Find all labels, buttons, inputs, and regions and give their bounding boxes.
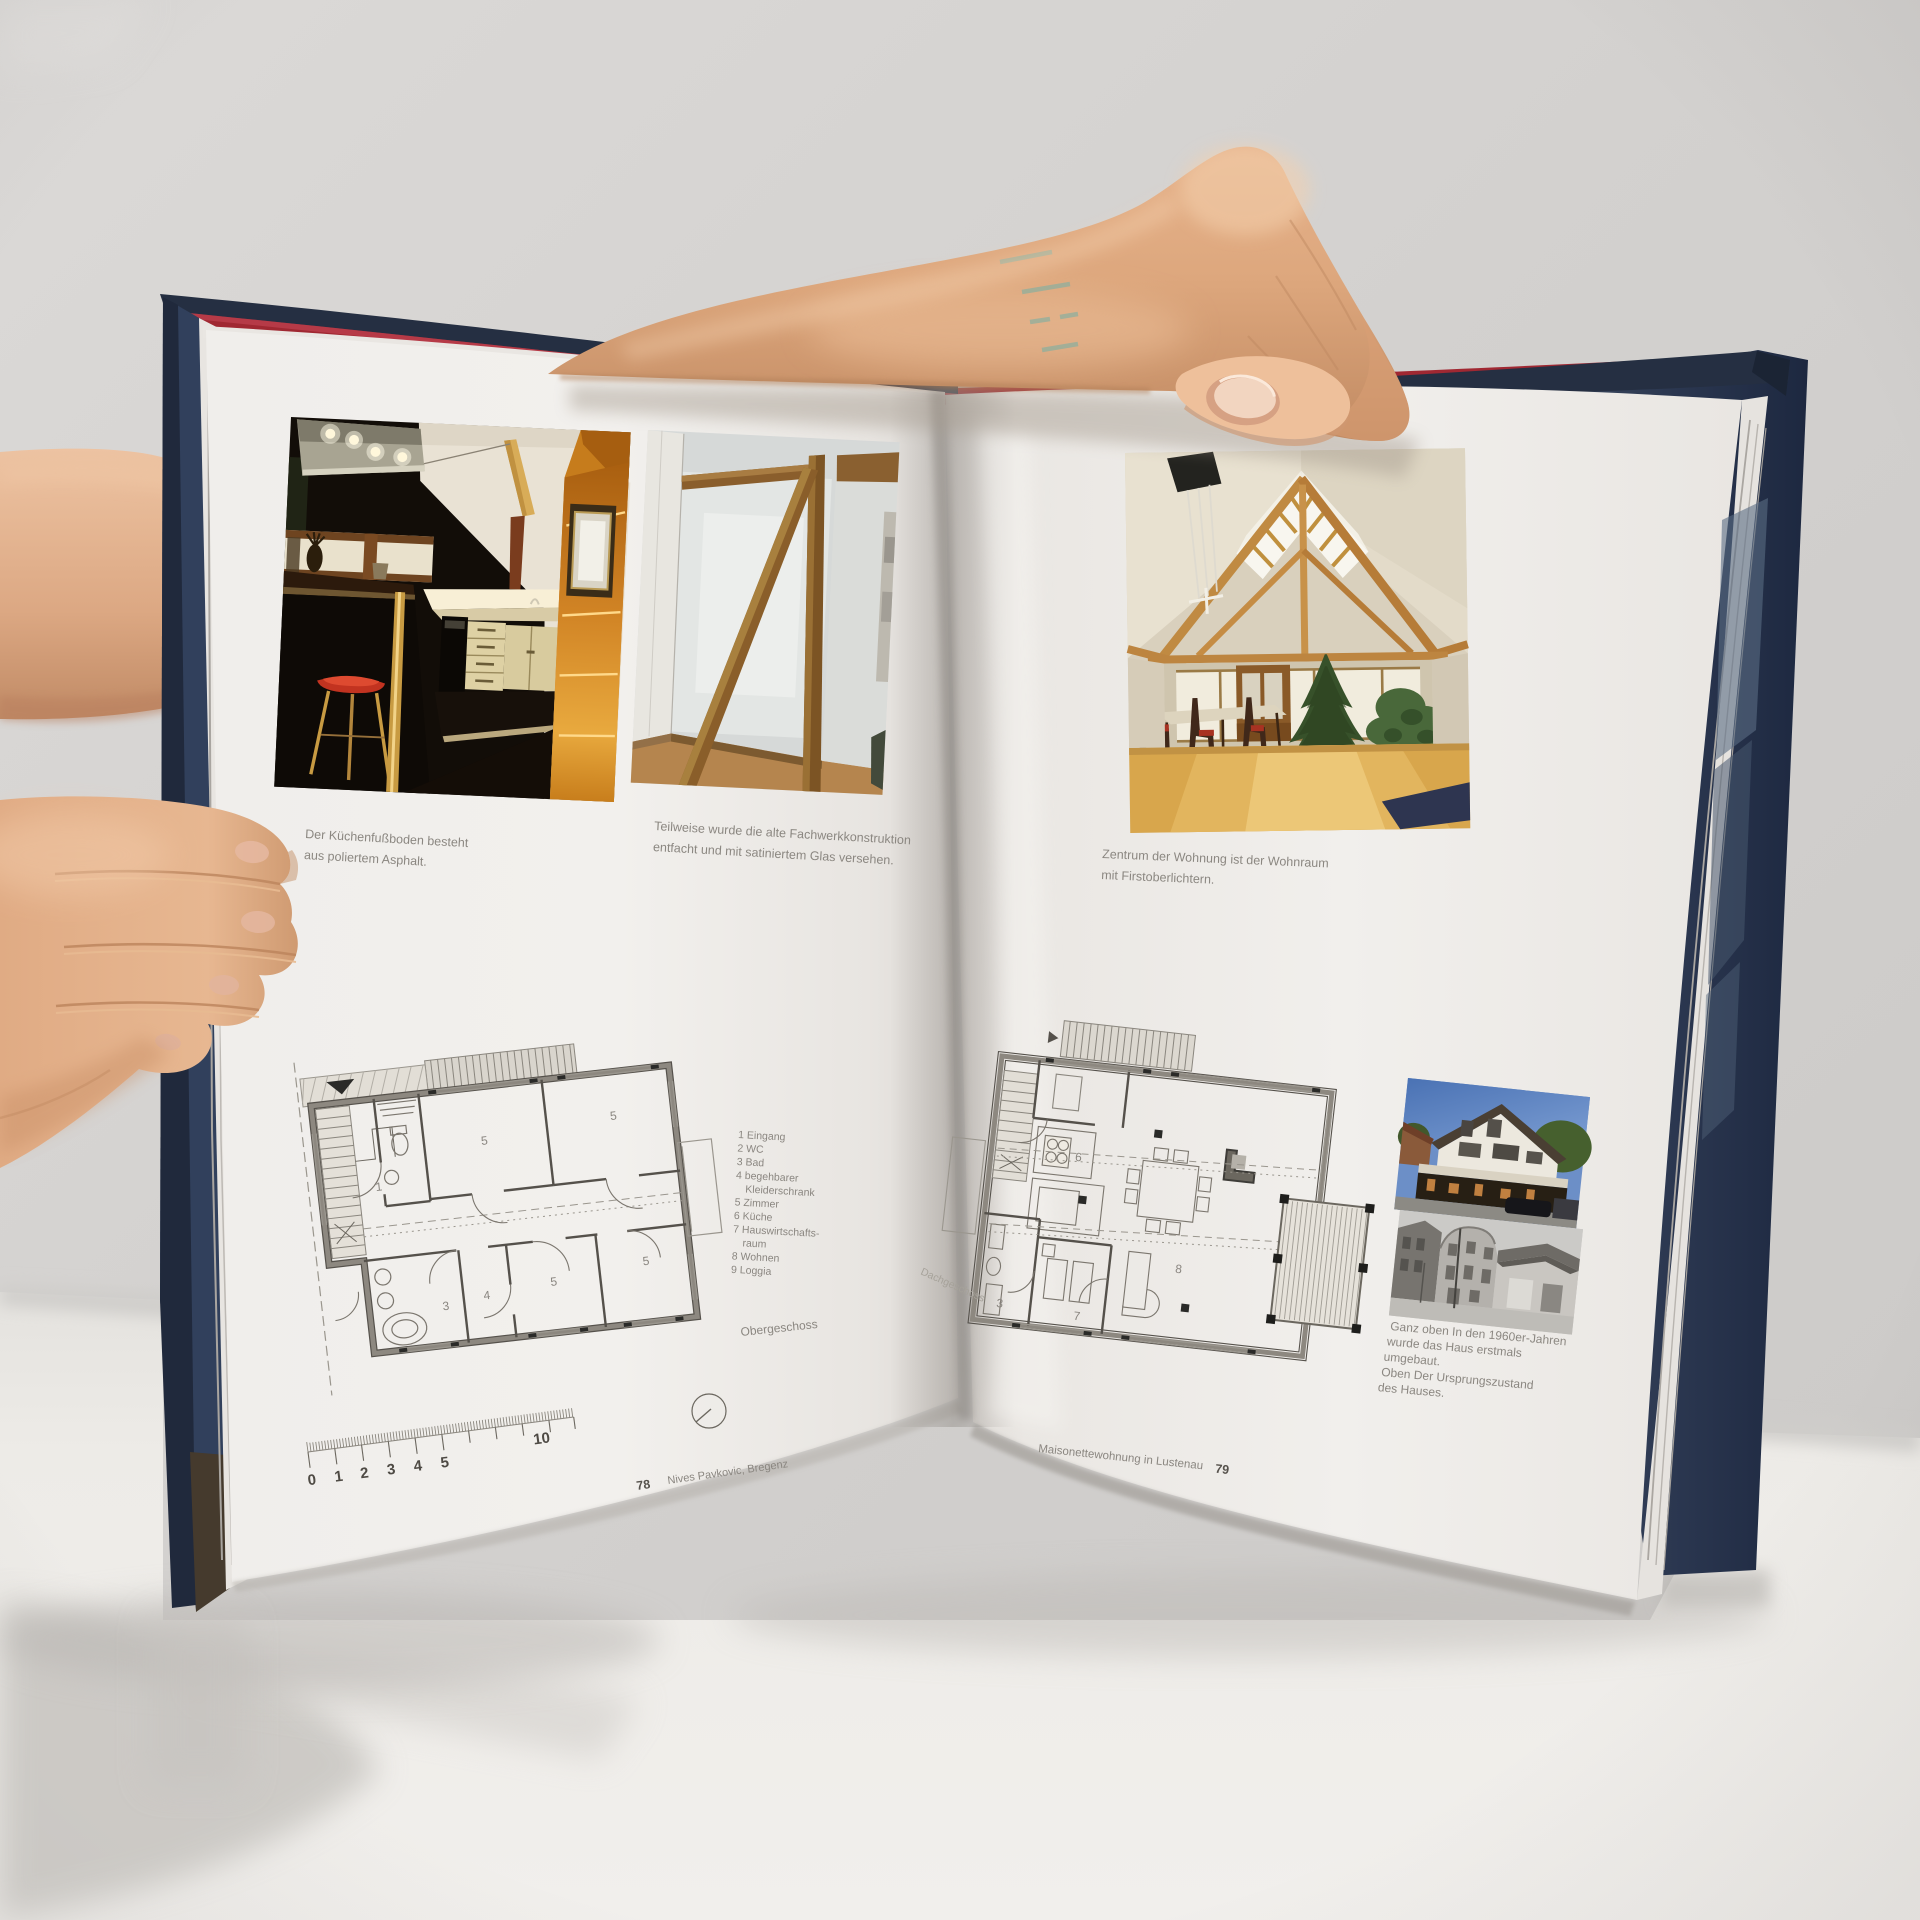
svg-text:3 Bad: 3 Bad [736,1156,764,1169]
svg-text:2 WC: 2 WC [737,1142,764,1155]
svg-text:79: 79 [1215,1462,1230,1477]
svg-text:9 Loggia: 9 Loggia [731,1264,772,1278]
svg-text:raum: raum [742,1237,767,1250]
svg-text:10: 10 [532,1429,551,1448]
svg-text:6 Küche: 6 Küche [734,1210,773,1224]
svg-text:5 Zimmer: 5 Zimmer [734,1196,779,1210]
svg-text:78: 78 [635,1477,651,1493]
svg-text:8 Wohnen: 8 Wohnen [731,1250,779,1264]
svg-text:1 Eingang: 1 Eingang [738,1129,786,1143]
